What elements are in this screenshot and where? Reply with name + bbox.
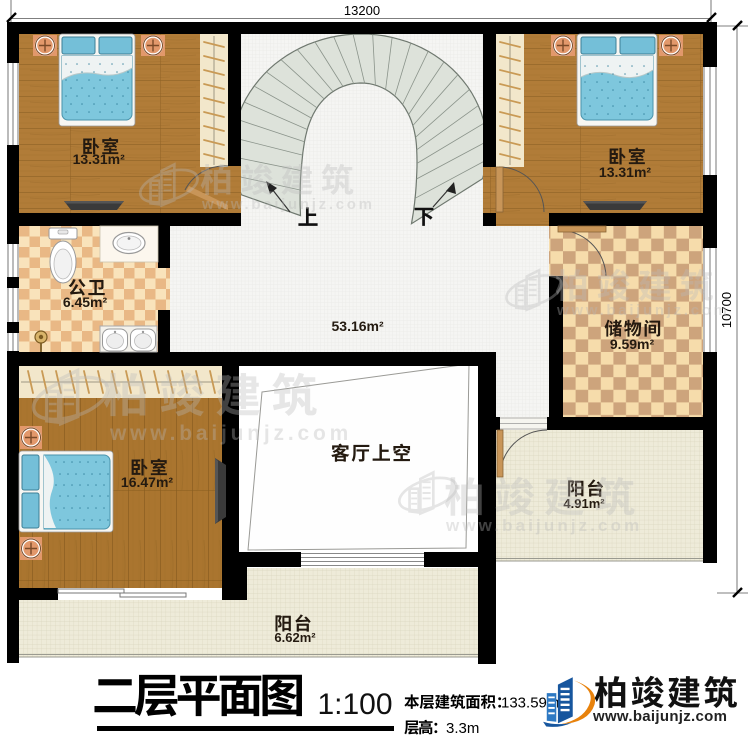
svg-text:www.baijunjz.com: www.baijunjz.com — [556, 302, 730, 319]
svg-text:www.baijunjz.com: www.baijunjz.com — [592, 708, 727, 725]
svg-text:www.baijunjz.com: www.baijunjz.com — [109, 422, 352, 445]
svg-text:13.31m²: 13.31m² — [599, 164, 651, 180]
svg-text:9.59m²: 9.59m² — [610, 336, 655, 352]
svg-text:6.62m²: 6.62m² — [274, 630, 316, 645]
svg-text:www.baijunjz.com: www.baijunjz.com — [201, 196, 375, 213]
svg-text:3.3m: 3.3m — [446, 720, 479, 737]
svg-text:53.16m²: 53.16m² — [332, 318, 384, 334]
svg-text:13.31m²: 13.31m² — [73, 151, 125, 167]
svg-text:www.baijunjz.com: www.baijunjz.com — [445, 516, 642, 535]
svg-text:16.47m²: 16.47m² — [121, 474, 173, 490]
svg-text:13200: 13200 — [344, 3, 380, 18]
svg-text:6.45m²: 6.45m² — [63, 294, 108, 310]
svg-text:1:100: 1:100 — [317, 688, 392, 721]
